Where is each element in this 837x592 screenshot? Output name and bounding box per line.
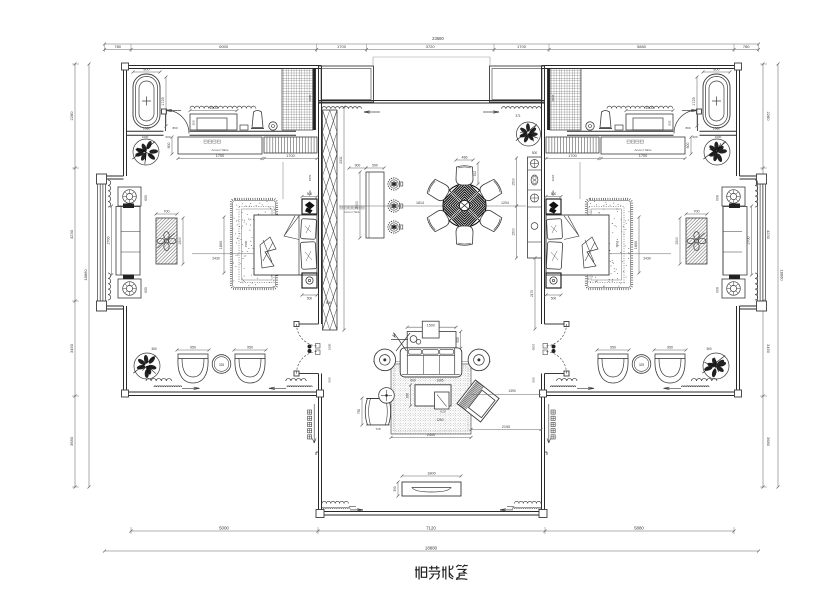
svg-text:325: 325 xyxy=(639,363,645,367)
svg-text:5880: 5880 xyxy=(637,44,647,49)
svg-text:500: 500 xyxy=(307,297,313,301)
svg-text:1500: 1500 xyxy=(244,240,248,247)
svg-text:3680: 3680 xyxy=(69,436,74,446)
svg-text:360: 360 xyxy=(151,347,157,351)
svg-text:1500: 1500 xyxy=(512,228,516,236)
svg-text:Accent Table: Accent Table xyxy=(344,210,360,214)
svg-text:800: 800 xyxy=(172,126,177,130)
svg-text:600: 600 xyxy=(165,135,170,139)
svg-text:486: 486 xyxy=(462,155,468,159)
svg-text:1260: 1260 xyxy=(436,418,443,422)
svg-text:1870: 1870 xyxy=(551,175,555,182)
svg-text:1500: 1500 xyxy=(675,237,679,245)
svg-text:590: 590 xyxy=(372,163,378,167)
svg-text:620: 620 xyxy=(440,410,445,414)
svg-text:350: 350 xyxy=(668,120,672,125)
svg-text:2700: 2700 xyxy=(107,237,111,245)
svg-text:18860: 18860 xyxy=(83,269,88,281)
svg-text:2179: 2179 xyxy=(530,290,534,297)
svg-text:718: 718 xyxy=(375,427,380,431)
svg-text:5880: 5880 xyxy=(634,526,644,531)
svg-text:750: 750 xyxy=(357,409,361,415)
svg-text:900: 900 xyxy=(355,163,361,167)
svg-text:23680: 23680 xyxy=(432,36,444,41)
svg-text:500: 500 xyxy=(328,377,332,382)
svg-text:800: 800 xyxy=(143,67,149,71)
svg-text:1500: 1500 xyxy=(512,178,516,186)
svg-text:18880: 18880 xyxy=(425,546,438,551)
svg-text:1000: 1000 xyxy=(328,343,332,350)
svg-text:500: 500 xyxy=(326,301,332,305)
svg-text:2280: 2280 xyxy=(766,112,771,122)
svg-text:600: 600 xyxy=(144,287,148,293)
svg-text:1725: 1725 xyxy=(161,97,165,105)
svg-text:1800: 1800 xyxy=(219,241,223,249)
svg-text:6000: 6000 xyxy=(219,44,229,49)
svg-text:950: 950 xyxy=(247,345,253,349)
svg-text:1500: 1500 xyxy=(178,237,182,245)
svg-text:630: 630 xyxy=(406,393,410,399)
svg-text:360: 360 xyxy=(706,347,712,351)
svg-text:325: 325 xyxy=(219,363,225,367)
svg-text:4230: 4230 xyxy=(766,230,771,240)
svg-text:600: 600 xyxy=(715,287,719,293)
svg-text:500: 500 xyxy=(532,151,538,155)
svg-text:3450: 3450 xyxy=(69,343,74,353)
svg-text:700: 700 xyxy=(694,209,700,213)
svg-text:912: 912 xyxy=(473,171,477,177)
svg-text:1095: 1095 xyxy=(436,379,443,383)
svg-text:2280: 2280 xyxy=(69,111,74,121)
svg-text:1814: 1814 xyxy=(416,201,424,205)
svg-text:500: 500 xyxy=(307,192,313,196)
svg-text:2190: 2190 xyxy=(502,425,510,429)
svg-text:950: 950 xyxy=(610,345,616,349)
svg-text:5000: 5000 xyxy=(219,526,229,531)
svg-text:600: 600 xyxy=(410,379,416,383)
svg-text:1700: 1700 xyxy=(639,154,647,158)
svg-text:3720: 3720 xyxy=(426,44,436,49)
svg-text:700: 700 xyxy=(164,209,170,213)
svg-text:1000: 1000 xyxy=(532,344,536,351)
svg-text:1204: 1204 xyxy=(501,201,509,205)
svg-text:4230: 4230 xyxy=(69,229,74,239)
svg-text:1725: 1725 xyxy=(692,97,696,105)
svg-text:2000: 2000 xyxy=(551,95,555,102)
svg-text:Accent Table: Accent Table xyxy=(634,148,651,152)
svg-text:1700: 1700 xyxy=(568,154,576,158)
svg-text:500: 500 xyxy=(551,297,557,301)
svg-text:2000: 2000 xyxy=(308,94,312,101)
svg-text:950: 950 xyxy=(667,345,673,349)
svg-text:1500: 1500 xyxy=(615,241,619,248)
svg-text:2400: 2400 xyxy=(427,433,435,437)
svg-text:7120: 7120 xyxy=(426,526,436,531)
svg-text:371: 371 xyxy=(515,114,521,118)
svg-text:780: 780 xyxy=(743,44,750,49)
svg-text:1800: 1800 xyxy=(634,241,638,249)
svg-text:2430: 2430 xyxy=(212,257,220,261)
svg-text:18860: 18860 xyxy=(780,269,785,281)
svg-text:Accent Table: Accent Table xyxy=(211,148,228,152)
svg-text:3680: 3680 xyxy=(766,437,771,447)
svg-text:1500: 1500 xyxy=(427,323,435,327)
svg-text:600: 600 xyxy=(715,195,719,201)
svg-text:500: 500 xyxy=(551,192,557,196)
svg-text:1870: 1870 xyxy=(308,174,312,181)
svg-text:1060: 1060 xyxy=(713,127,721,131)
svg-text:2000: 2000 xyxy=(355,201,359,209)
svg-text:950: 950 xyxy=(190,345,196,349)
svg-text:1390: 1390 xyxy=(508,389,516,393)
svg-text:780: 780 xyxy=(114,44,121,49)
svg-text:500: 500 xyxy=(532,377,536,382)
svg-text:1700: 1700 xyxy=(337,44,347,49)
svg-text:800: 800 xyxy=(713,67,719,71)
svg-text:800: 800 xyxy=(685,126,690,130)
svg-text:350: 350 xyxy=(192,120,196,125)
svg-text:1700: 1700 xyxy=(517,44,527,49)
svg-text:2430: 2430 xyxy=(643,257,651,261)
svg-text:1700: 1700 xyxy=(286,154,294,158)
svg-text:1060: 1060 xyxy=(143,127,151,131)
svg-text:600: 600 xyxy=(686,143,690,149)
svg-text:500: 500 xyxy=(456,337,460,343)
svg-text:600: 600 xyxy=(692,135,697,139)
svg-text:600: 600 xyxy=(144,195,148,201)
svg-text:2331: 2331 xyxy=(339,156,343,164)
svg-text:1700: 1700 xyxy=(216,154,224,158)
svg-text:1500: 1500 xyxy=(645,106,653,110)
svg-text:2700: 2700 xyxy=(747,237,751,245)
svg-text:350: 350 xyxy=(393,486,397,492)
svg-text:3450: 3450 xyxy=(766,344,771,354)
svg-text:1500: 1500 xyxy=(209,106,217,110)
svg-text:600: 600 xyxy=(167,143,171,149)
svg-text:1800: 1800 xyxy=(427,471,435,475)
